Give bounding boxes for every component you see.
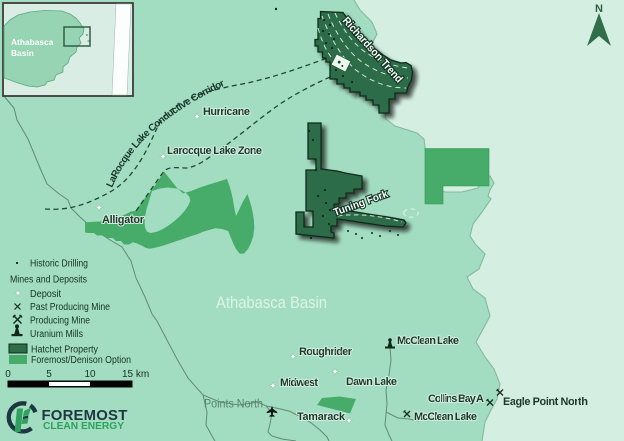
- svg-text:Dawn Lake: Dawn Lake: [346, 376, 397, 388]
- svg-text:Alligator: Alligator: [102, 214, 145, 226]
- svg-text:Producing Mine: Producing Mine: [30, 316, 90, 327]
- svg-text:Athabasca: Athabasca: [11, 37, 54, 47]
- svg-text:CLEAN ENERGY: CLEAN ENERGY: [43, 421, 124, 432]
- svg-text:Collins Bay A: Collins Bay A: [428, 393, 484, 405]
- svg-text:15 km: 15 km: [122, 369, 149, 380]
- svg-text:McClean Lake: McClean Lake: [414, 411, 477, 423]
- svg-text:Tamarack: Tamarack: [297, 411, 346, 423]
- svg-text:Roughrider: Roughrider: [299, 346, 353, 358]
- svg-text:Midwest: Midwest: [280, 377, 318, 389]
- svg-text:N: N: [595, 3, 603, 15]
- svg-text:Hatchet Property: Hatchet Property: [31, 345, 98, 356]
- svg-text:Deposit: Deposit: [30, 289, 61, 300]
- svg-text:Uranium Mills: Uranium Mills: [30, 329, 83, 340]
- svg-text:Foremost/Denison Option: Foremost/Denison Option: [31, 355, 131, 366]
- svg-text:Past Producing Mine: Past Producing Mine: [30, 302, 110, 313]
- svg-text:10: 10: [84, 369, 96, 380]
- svg-text:Historic Drilling: Historic Drilling: [30, 259, 88, 270]
- svg-text:McClean Lake: McClean Lake: [397, 335, 459, 347]
- svg-text:Points North: Points North: [204, 399, 263, 411]
- svg-text:Hurricane: Hurricane: [203, 106, 250, 118]
- svg-text:5: 5: [46, 369, 52, 380]
- svg-text:Basin: Basin: [11, 48, 34, 58]
- svg-text:0: 0: [5, 369, 11, 380]
- svg-text:Eagle Point North: Eagle Point North: [503, 396, 588, 408]
- svg-text:Larocque Lake Zone: Larocque Lake Zone: [167, 145, 262, 157]
- svg-text:Mines and Deposits: Mines and Deposits: [10, 275, 87, 286]
- svg-text:Athabasca Basin: Athabasca Basin: [216, 294, 327, 312]
